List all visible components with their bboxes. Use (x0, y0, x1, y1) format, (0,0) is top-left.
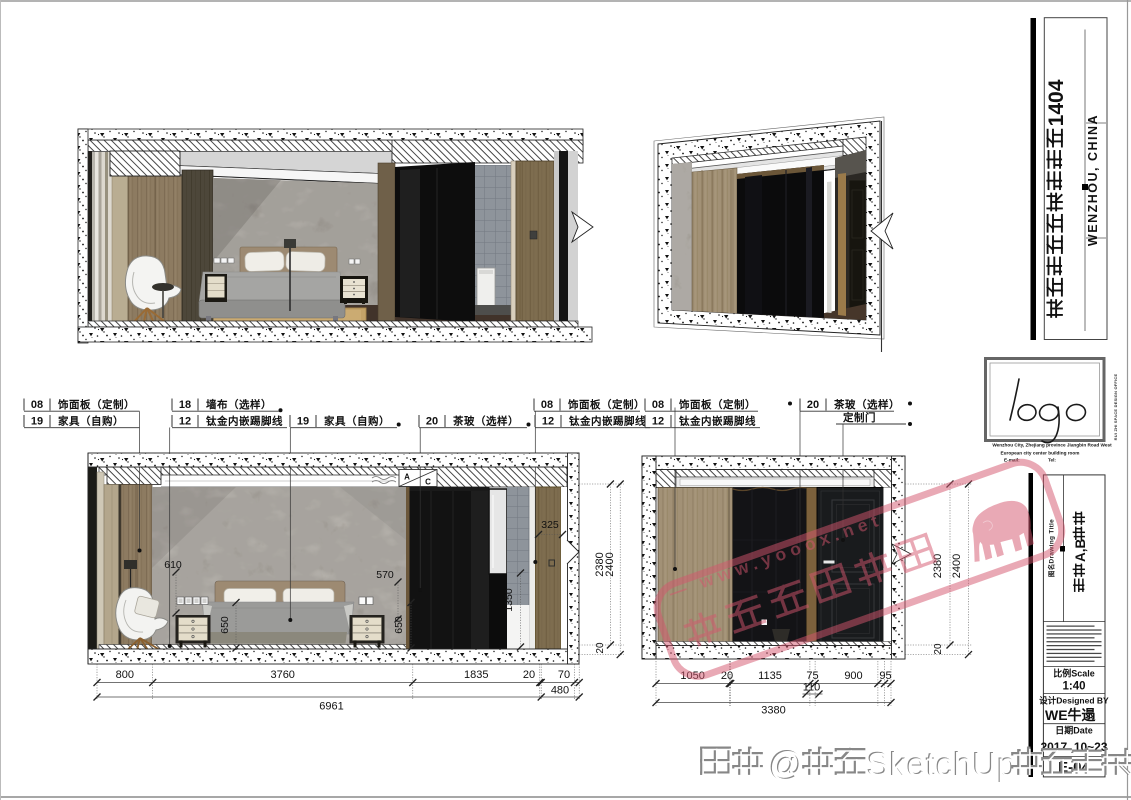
svg-text:08: 08 (31, 399, 43, 411)
svg-text:1835: 1835 (464, 669, 488, 681)
svg-text:@: @ (769, 746, 804, 784)
svg-text:Wenzhou City, Zhejiang provinc: Wenzhou City, Zhejiang province Jiangbin… (992, 443, 1112, 448)
svg-text:480: 480 (551, 685, 569, 697)
svg-text:20: 20 (523, 669, 535, 681)
svg-text:钛金内嵌踢脚线: 钛金内嵌踢脚线 (679, 415, 756, 428)
svg-text:3380: 3380 (761, 705, 785, 717)
svg-text:610: 610 (164, 559, 182, 571)
svg-text:08: 08 (652, 399, 664, 411)
svg-text:C: C (425, 478, 431, 487)
svg-text:900: 900 (844, 670, 862, 682)
svg-text:European city center building: European city center building room (1001, 451, 1080, 456)
svg-text:6961: 6961 (319, 701, 343, 713)
svg-text:650: 650 (219, 616, 231, 634)
svg-text:19: 19 (297, 416, 309, 428)
svg-text:1135: 1135 (758, 670, 782, 682)
svg-text:Tel:: Tel: (1048, 458, 1056, 463)
svg-text:钛金内嵌踢脚线: 钛金内嵌踢脚线 (206, 415, 283, 428)
svg-text:比例Scale: 比例Scale (1053, 668, 1095, 679)
svg-text:SketchUp: SketchUp (867, 746, 1016, 783)
svg-text:茶玻（选样）: 茶玻（选样） (833, 398, 900, 411)
svg-text:2400: 2400 (604, 552, 616, 576)
svg-text:饰面板（定制）: 饰面板（定制） (58, 398, 135, 411)
svg-text:家具（自购）: 家具（自购） (324, 415, 390, 428)
svg-text:1350: 1350 (503, 588, 515, 612)
svg-text:设计Designed BY: 设计Designed BY (1039, 696, 1109, 706)
svg-text:RUI ZHI SPACE DESIGN OFFICE: RUI ZHI SPACE DESIGN OFFICE (1113, 374, 1118, 441)
svg-text:2400: 2400 (951, 554, 963, 578)
svg-text:325: 325 (541, 519, 559, 531)
svg-text:20: 20 (933, 643, 944, 655)
svg-text:定制门: 定制门 (842, 411, 876, 424)
svg-text:18: 18 (179, 399, 191, 411)
svg-text:家具（自购）: 家具（自购） (58, 415, 124, 428)
svg-text:19: 19 (31, 416, 43, 428)
svg-text:饰面板（定制）: 饰面板（定制） (679, 398, 756, 411)
svg-text:12: 12 (542, 416, 554, 428)
svg-text:WENZHOU, CHINA: WENZHOU, CHINA (1086, 114, 1100, 246)
svg-text:12: 12 (179, 416, 191, 428)
svg-text:墙布（选样）: 墙布（选样） (206, 398, 272, 411)
svg-text:饰面板（定制）: 饰面板（定制） (568, 398, 645, 411)
svg-text:A,B: A,B (1073, 539, 1088, 563)
svg-text:WE牛遢: WE牛遢 (1045, 707, 1096, 723)
svg-text:75: 75 (806, 670, 818, 682)
svg-text:20: 20 (426, 416, 438, 428)
svg-text:70: 70 (558, 669, 570, 681)
svg-text:钛金内嵌踢脚线: 钛金内嵌踢脚线 (569, 415, 646, 428)
svg-text:650: 650 (393, 616, 405, 634)
svg-text:A: A (404, 473, 410, 482)
svg-text:20: 20 (807, 399, 819, 411)
svg-text:12: 12 (652, 416, 664, 428)
svg-text:95: 95 (879, 670, 891, 682)
svg-text:1404: 1404 (1045, 79, 1068, 126)
svg-text:1:40: 1:40 (1062, 681, 1085, 693)
svg-text:日期Date: 日期Date (1055, 725, 1093, 736)
svg-text:570: 570 (376, 569, 394, 581)
svg-text:20: 20 (595, 642, 606, 654)
svg-text:08: 08 (541, 399, 553, 411)
svg-text:800: 800 (116, 669, 134, 681)
svg-text:3760: 3760 (270, 669, 294, 681)
svg-text:茶玻（选样）: 茶玻（选样） (452, 415, 519, 428)
svg-text:110: 110 (803, 682, 821, 694)
